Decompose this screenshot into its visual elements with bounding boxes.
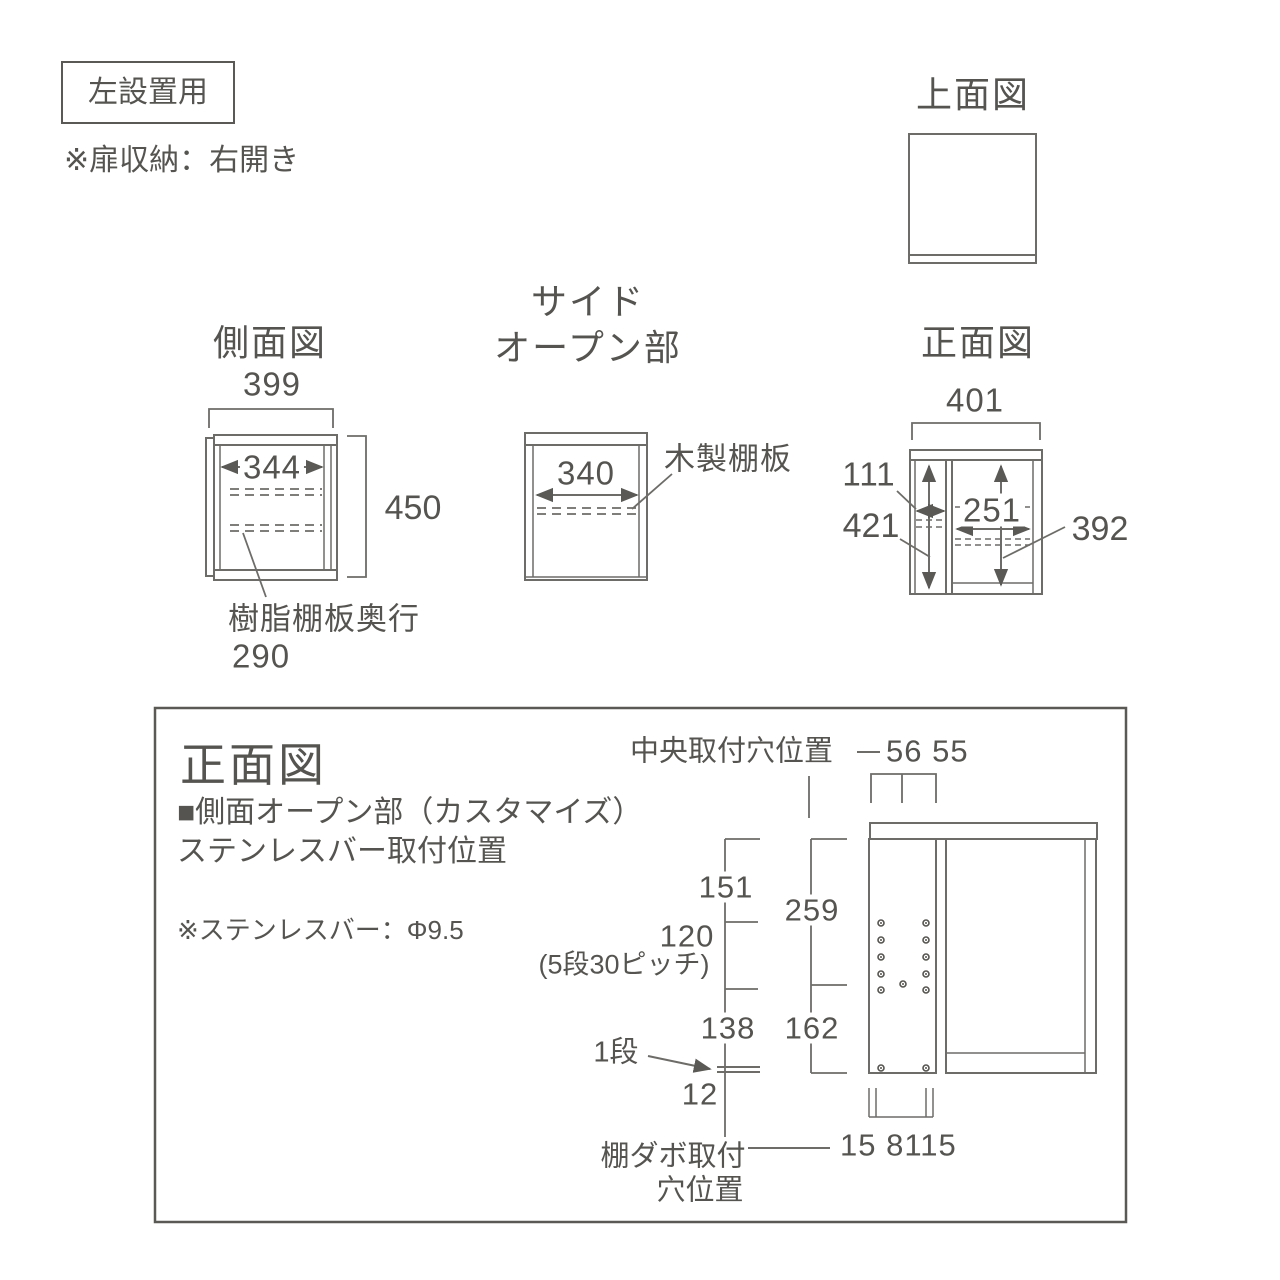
side-open-title-line1: サイド [531, 284, 645, 320]
bottom-cabinet-drawing [869, 823, 1097, 1117]
front-view-111: 111 [842, 458, 895, 491]
pitch-note: (5段30ピッチ) [538, 952, 709, 979]
side-view-drawing [206, 409, 366, 597]
wood-shelf-dashes [537, 508, 637, 514]
resin-shelf-depth-290: 290 [232, 640, 290, 673]
front-view-421: 421 [843, 509, 900, 543]
dabo-label-line1: 棚ダボ取付 [600, 1143, 745, 1172]
front-view-title: 正面図 [921, 325, 1035, 361]
dim-162: 162 [782, 1013, 843, 1044]
dim-bracket-401 [912, 423, 1040, 440]
side-view-title: 側面図 [213, 325, 327, 361]
leader-resin-shelf [243, 533, 266, 597]
side-open-width-340: 340 [554, 457, 618, 490]
side-view-inner-344: 344 [240, 451, 304, 484]
front-view-392: 392 [1072, 512, 1129, 546]
dabo-dims-15-81-15: 15 8115 [840, 1130, 957, 1161]
door-panel [946, 839, 1096, 1073]
leader-392 [1003, 527, 1065, 558]
badge-left-installation: 左設置用 [88, 78, 208, 108]
side-open-title-line2: オープン部 [494, 330, 682, 366]
dim-bracket-450 [347, 436, 366, 577]
leader-wood-shelf [632, 474, 672, 509]
resin-shelf-dashes [230, 489, 322, 531]
center-hole-dims-56-55: 56 55 [886, 736, 969, 767]
dim-12: 12 [682, 1079, 718, 1110]
back-strip [206, 438, 214, 576]
center-hole-label: 中央取付穴位置 [630, 738, 833, 767]
dabo-label-line2: 穴位置 [656, 1177, 743, 1206]
bottom-subtitle-line1: ■側面オープン部（カスタマイズ） [177, 798, 642, 828]
dim-138: 138 [698, 1013, 759, 1044]
one-shelf-label: 1段 [593, 1039, 638, 1068]
side-view-height-450: 450 [385, 491, 442, 525]
left-section-dashes [916, 520, 945, 527]
dabo-hole-bracket [869, 1088, 933, 1117]
diagram-linework [0, 0, 1280, 1280]
top-view-drawing [909, 134, 1036, 263]
dim-bracket-399 [209, 409, 333, 428]
bottom-subtitle-line2: ステンレスバー取付位置 [177, 837, 507, 867]
dim-151: 151 [696, 872, 757, 903]
side-view-width-399: 399 [243, 368, 301, 401]
shelf-pin-holes [878, 920, 929, 1071]
one-shelf-arrow [648, 1056, 710, 1069]
furniture-dimension-diagram: 左設置用 ※扉収納：右開き 上面図 側面図 399 344 450 樹脂棚板奥行… [0, 0, 1280, 1280]
stainless-bar-note: ※ステンレスバー：Φ9.5 [177, 917, 464, 943]
top-rail [870, 823, 1097, 839]
front-view-width-401: 401 [946, 384, 1004, 417]
top-view-title: 上面図 [916, 77, 1030, 113]
wood-shelf-label: 木製棚板 [664, 444, 792, 475]
leader-111 [897, 491, 916, 509]
dim-120: 120 [660, 921, 715, 952]
door-storage-note: ※扉収納：右開き [64, 146, 299, 176]
resin-shelf-label: 樹脂棚板奥行 [228, 604, 420, 635]
dim-bracket-56-55 [871, 774, 936, 803]
dim-259: 259 [782, 895, 843, 926]
bottom-panel-title: 正面図 [180, 742, 327, 788]
front-view-251: 251 [960, 494, 1024, 527]
